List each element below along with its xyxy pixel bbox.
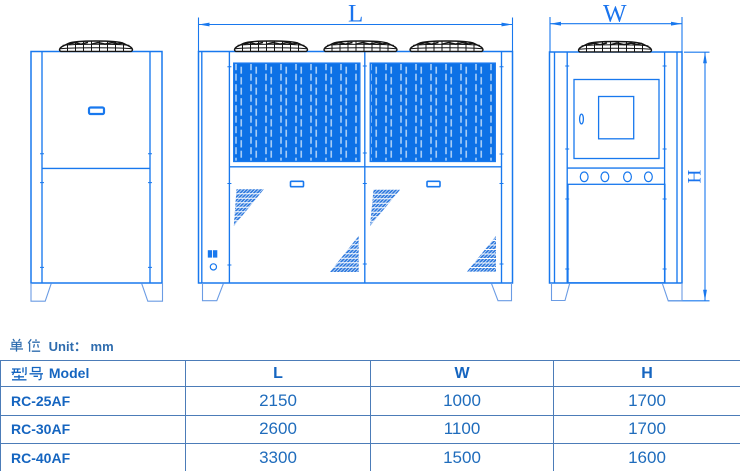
svg-text:H: H	[685, 169, 706, 183]
svg-text:L: L	[348, 1, 363, 28]
svg-text:W: W	[603, 1, 627, 28]
